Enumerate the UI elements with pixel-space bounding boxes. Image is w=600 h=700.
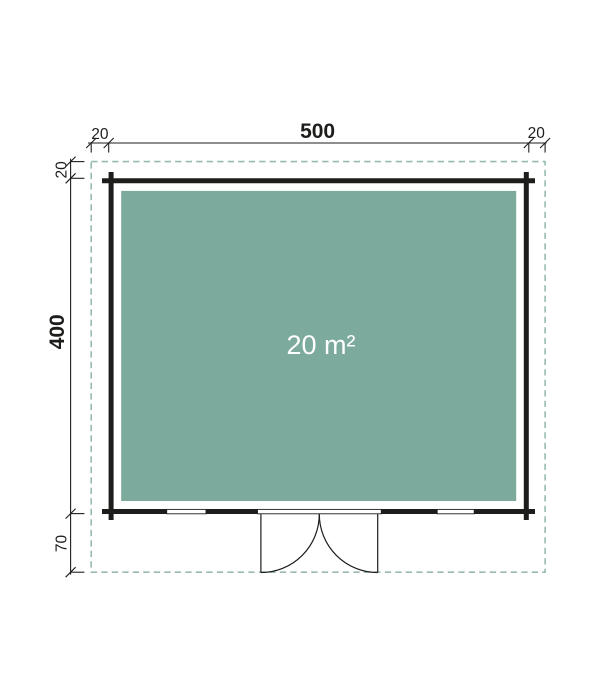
svg-text:400: 400	[46, 314, 69, 349]
svg-text:500: 500	[300, 120, 335, 143]
svg-text:20 m²: 20 m²	[286, 330, 355, 360]
svg-text:70: 70	[54, 535, 71, 553]
svg-text:20: 20	[91, 126, 109, 143]
svg-text:20: 20	[528, 125, 546, 142]
svg-text:20: 20	[54, 161, 71, 179]
